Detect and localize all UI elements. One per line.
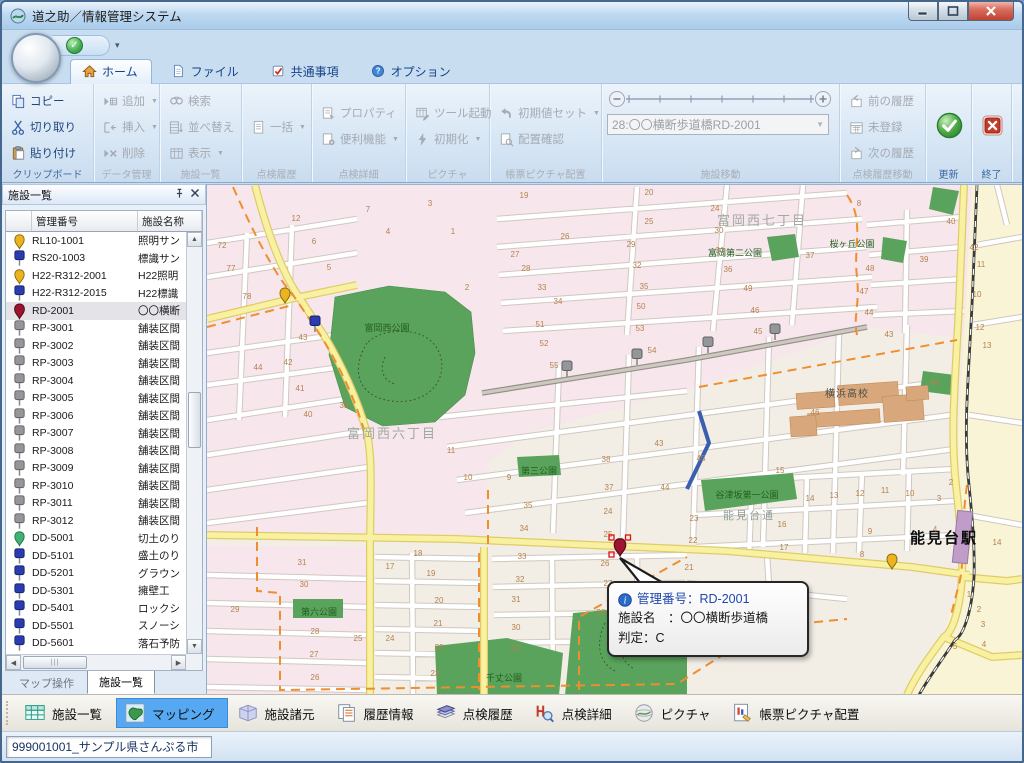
group-label-inspection-history: 点検履歴 [242,166,311,181]
table-row[interactable]: DD-5601落石予防 [6,635,186,653]
toolbar-item-帳票ピクチャ配置[interactable]: 帳票ピクチャ配置 [724,699,871,727]
svg-text:10: 10 [973,290,982,299]
row-name: 落石予防 [138,636,186,651]
table-row[interactable]: RP-3002舗装区間 [6,337,186,355]
paste-button[interactable]: 貼り付け [7,140,89,166]
file-icon [170,63,186,79]
svg-text:2: 2 [977,605,982,614]
table-header: 管理番号 施設名称 [6,211,202,232]
svg-text:16: 16 [778,520,787,529]
row-name: 舗装区間 [138,513,186,528]
ribbon-group-inspection-detail: プロパティ 便利機能▼ 点検詳細 [312,84,406,182]
svg-text:44: 44 [865,308,874,317]
marker-gray-icon [6,407,32,425]
marker-gray-icon [6,354,32,372]
property-button[interactable]: プロパティ [317,100,401,126]
question-icon: ? [370,63,386,79]
svg-text:1: 1 [451,227,456,236]
svg-text:12: 12 [292,214,301,223]
calendar-icon [848,119,864,135]
vertical-scrollbar[interactable]: ▲ ▼ [186,232,202,654]
sort-icon [168,119,184,135]
row-id: RP-3004 [32,375,138,387]
ribbon-group-history-move: 前の履歴 未登録 次の履歴 点検履歴移動 [840,84,926,182]
svg-text:8: 8 [857,199,862,208]
row-name: グラウン [138,566,186,581]
svg-text:3: 3 [981,620,986,629]
svg-text:39: 39 [340,401,349,410]
add-button[interactable]: 追加▼ [99,88,155,114]
row-id: RP-3003 [32,357,138,369]
column-header-icon[interactable] [6,211,32,231]
group-label-facility-move: 施設移動 [602,166,839,181]
table-row[interactable]: DD-5501スノーシ [6,617,186,635]
row-id: RP-3011 [32,497,138,509]
svg-text:33: 33 [518,552,527,561]
panel-title: 施設一覧 [8,187,52,203]
row-id: DD-5601 [32,637,138,649]
tab-common[interactable]: 共通事項 [260,59,352,84]
scroll-down-icon[interactable]: ▼ [187,639,202,654]
btbook-icon [237,702,259,724]
svg-text:能見台通: 能見台通 [723,508,775,522]
svg-text:77: 77 [227,264,236,273]
table-row[interactable]: DD-5001切土のり [6,530,186,548]
svg-text:25: 25 [354,634,363,643]
group-label-facility-list: 施設一覧 [160,166,241,181]
row-id: RP-3006 [32,410,138,422]
table-row[interactable]: DD-5301擁壁工 [6,582,186,600]
svg-text:44: 44 [661,483,670,492]
scroll-left-icon[interactable]: ◀ [6,655,21,670]
marker-blue-icon [6,564,32,582]
sort-button[interactable]: 並べ替え [165,114,237,140]
next-history-button[interactable]: 次の履歴 [845,140,921,166]
toolbar-item-マッピング[interactable]: マッピング [116,698,228,728]
toolbar-item-点検詳細[interactable]: 点検詳細 [527,699,624,727]
update-button[interactable] [935,111,964,145]
svg-text:37: 37 [806,251,815,260]
svg-text:35: 35 [524,501,533,510]
ribbon-tabstrip: ホーム ファイル 共通事項 ? オプション [70,59,464,84]
marker-gray-icon [6,512,32,530]
cut-icon [10,119,26,135]
svg-text:26: 26 [311,673,320,682]
toolbar-grip[interactable] [6,701,11,725]
row-id: DD-5301 [32,585,138,597]
row-name: 舗装区間 [138,478,186,493]
marker-gray-icon [6,477,32,495]
ribbon-group-exit: 終了 [972,84,1012,182]
svg-text:46: 46 [751,306,760,315]
svg-text:桜ヶ丘公園: 桜ヶ丘公園 [829,238,874,249]
view-button[interactable]: 表示▼ [165,140,237,166]
row-id: H22-R312-2015 [32,287,138,299]
svg-text:4: 4 [933,525,938,534]
svg-text:30: 30 [300,580,309,589]
table-row[interactable]: RP-3011舗装区間 [6,495,186,513]
status-bar: 999001001_サンプル県さんぷる市 [2,731,1022,761]
row-name: H22照明 [138,268,186,283]
table-row[interactable]: RD-2001〇〇横断 [6,302,186,320]
svg-text:富岡西七丁目: 富岡西七丁目 [717,213,807,228]
maximize-button[interactable] [938,2,968,21]
tab-file[interactable]: ファイル [160,59,252,84]
svg-text:45: 45 [754,327,763,336]
title-bar: 道之助／情報管理システム [2,2,1022,30]
row-id: RS20-1003 [32,252,138,264]
svg-text:9: 9 [868,527,873,536]
svg-text:43: 43 [299,333,308,342]
svg-text:14: 14 [993,538,1002,547]
lightning-icon [414,131,430,147]
map-area: 富岡西七丁目富岡第二公園桜ヶ丘公園富岡西公園富岡西六丁目横浜高校谷津坂第一公園能… [207,184,1022,694]
svg-text:23: 23 [690,514,699,523]
tab-home[interactable]: ホーム [70,59,152,84]
svg-text:40: 40 [947,217,956,226]
svg-text:7: 7 [366,205,371,214]
row-id: DD-5201 [32,567,138,579]
svg-text:43: 43 [655,439,664,448]
table-row[interactable]: H22-R312-2001H22照明 [6,267,186,285]
tooltip-rating: 判定：C [618,629,797,648]
chevron-down-icon: ▼ [151,98,158,105]
tool-launch-button[interactable]: ツール起動 [411,100,485,126]
row-name: 標識サン [138,251,186,266]
marker-blue-icon [6,249,32,267]
marker-gray-icon [6,442,32,460]
svg-text:10: 10 [906,489,915,498]
svg-text:第六公園: 第六公園 [301,606,337,617]
toolbar-item-施設一覧[interactable]: 施設一覧 [17,699,114,727]
chevron-down-icon: ▼ [151,124,158,131]
row-name: 切土のり [138,531,186,546]
row-id: RP-3007 [32,427,138,439]
svg-text:27: 27 [511,250,520,259]
undo-icon [498,105,514,121]
scrollbar-thumb[interactable]: ||| [23,656,87,669]
window-title: 道之助／情報管理システム [32,6,182,25]
svg-text:3: 3 [428,199,433,208]
group-label-inspection-detail: 点検詳細 [312,166,405,181]
svg-text:49: 49 [744,284,753,293]
row-id: RP-3009 [32,462,138,474]
marker-gray-icon [6,424,32,442]
svg-text:32: 32 [633,261,642,270]
svg-text:48: 48 [931,378,940,387]
svg-text:26: 26 [601,559,610,568]
row-name: 舗装区間 [138,373,186,388]
svg-text:43: 43 [885,330,894,339]
initialize-button[interactable]: 初期化▼ [411,126,485,152]
svg-text:21: 21 [685,563,694,572]
group-label-clipboard: クリップボード [2,166,93,181]
chevron-down-icon: ▼ [299,124,306,131]
svg-text:富岡西公園: 富岡西公園 [364,322,409,333]
svg-text:9: 9 [507,473,512,482]
cut-button[interactable]: 切り取り [7,114,89,140]
row-id: RP-3005 [32,392,138,404]
svg-text:45: 45 [697,454,706,463]
row-name: 〇〇横断 [138,303,186,318]
table-row[interactable]: RP-3001舗装区間 [6,320,186,338]
table-row[interactable]: DD-5201グラウン [6,565,186,583]
insert-icon [102,119,118,135]
layout-check-button[interactable]: 配置確認 [495,126,597,152]
svg-text:22: 22 [689,536,698,545]
paste-icon [10,145,26,161]
table-row[interactable]: RS20-1003標識サン [6,250,186,268]
ribbon-group-picture: ツール起動 初期化▼ ピクチャ [406,84,490,182]
svg-text:34: 34 [520,524,529,533]
row-id: DD-5401 [32,602,138,614]
table-row[interactable]: RP-3010舗装区間 [6,477,186,495]
marker-gray-icon [6,494,32,512]
row-name: 照明サン [138,233,186,248]
batch-button[interactable]: 一括▼ [247,114,307,140]
btreport-icon [731,702,753,724]
svg-text:31: 31 [716,246,725,255]
table-row[interactable]: DD-5401ロックシ [6,600,186,618]
row-id: DD-5001 [32,532,138,544]
scroll-up-icon[interactable]: ▲ [187,232,202,247]
row-name: 舗装区間 [138,408,186,423]
svg-text:横浜高校: 横浜高校 [825,387,869,400]
toolbar-item-履歴情報[interactable]: 履歴情報 [329,699,426,727]
chevron-down-icon: ▼ [475,136,482,143]
svg-text:11: 11 [977,260,986,269]
row-name: 舗装区間 [138,321,186,336]
svg-text:11: 11 [881,486,890,495]
initial-value-set-button[interactable]: 初期値セット▼ [495,100,597,126]
svg-text:51: 51 [536,320,545,329]
row-id: RP-3010 [32,480,138,492]
svg-text:53: 53 [636,324,645,333]
svg-text:78: 78 [243,292,252,301]
quick-confirm-button[interactable]: ✓ [66,37,83,54]
chevron-down-icon: ▼ [392,136,399,143]
tab-facility-list[interactable]: 施設一覧 [87,670,155,694]
panel-tabs: マップ操作 施設一覧 [2,671,206,694]
column-header-id[interactable]: 管理番号 [32,211,138,231]
row-name: 盛土のり [138,548,186,563]
svg-text:8: 8 [860,550,865,559]
toolbar-item-ピクチャ[interactable]: ピクチャ [626,699,723,727]
exit-button[interactable] [982,115,1003,141]
marker-gray-icon [6,319,32,337]
svg-text:2: 2 [949,478,954,487]
row-name: 舗装区間 [138,426,186,441]
btgrid-icon [24,702,46,724]
tool-icon [414,105,430,121]
table-row[interactable]: RP-3012舗装区間 [6,512,186,530]
svg-text:25: 25 [645,217,654,226]
svg-text:10: 10 [464,473,473,482]
svg-text:11: 11 [447,446,456,455]
table-row[interactable]: RP-3006舗装区間 [6,407,186,425]
table-row[interactable]: RL10-1001照明サン [6,232,186,250]
pin-yellow-icon [6,267,32,285]
group-label-update: 更新 [926,166,971,181]
tab-options[interactable]: ? オプション [360,59,464,84]
group-label-history-move: 点検履歴移動 [840,166,925,181]
group-label-picture: ピクチャ [406,166,489,181]
row-id: H22-R312-2001 [32,270,138,282]
search-button[interactable]: 検索 [165,88,237,114]
scrollbar-thumb[interactable] [188,392,201,448]
pin-yellow-icon [6,232,32,250]
svg-text:29: 29 [627,240,636,249]
svg-text:30: 30 [512,623,521,632]
svg-text:19: 19 [520,191,529,200]
svg-text:5: 5 [953,642,958,651]
svg-text:28: 28 [597,608,606,617]
svg-text:33: 33 [538,283,547,292]
chevron-down-icon: ▼ [816,120,824,129]
quick-access-dropdown-icon[interactable]: ▾ [115,40,120,51]
copy-icon [10,93,26,109]
ribbon-group-clipboard: コピー 切り取り 貼り付け クリップボード [2,84,94,182]
svg-text:24: 24 [386,634,395,643]
svg-text:30: 30 [715,226,724,235]
svg-text:36: 36 [724,265,733,274]
btdetail-icon [534,702,556,724]
svg-text:38: 38 [602,455,611,464]
application-orb-button[interactable] [11,33,61,83]
table-row[interactable]: RP-3007舗装区間 [6,425,186,443]
bthistory-icon [336,702,358,724]
toolbar-item-施設諸元[interactable]: 施設諸元 [230,699,327,727]
chevron-down-icon: ▼ [217,150,224,157]
table-row[interactable]: RP-3008舗装区間 [6,442,186,460]
svg-text:40: 40 [304,410,313,419]
svg-text:44: 44 [254,363,263,372]
row-id: RD-2001 [32,305,138,317]
row-id: RP-3008 [32,445,138,457]
marker-blue-icon [6,634,32,652]
svg-text:29: 29 [511,644,520,653]
svg-text:谷津坂第一公園: 谷津坂第一公園 [715,489,778,500]
minimize-button[interactable] [908,2,938,21]
facility-move-slider[interactable] [607,88,835,110]
row-id: RP-3001 [32,322,138,334]
svg-text:35: 35 [640,282,649,291]
document-icon [250,119,266,135]
row-name: スノーシ [138,618,186,633]
horizontal-scrollbar[interactable]: ◀ ||| ▶ [6,654,186,670]
svg-text:19: 19 [427,569,436,578]
tooltip-id: 管理番号：RD-2001 [637,590,750,609]
svg-text:20: 20 [645,188,654,197]
table-row[interactable]: H22-R312-2015H22標識 [6,285,186,303]
add-icon [102,93,118,109]
svg-text:12: 12 [856,489,865,498]
svg-text:2: 2 [465,283,470,292]
group-label-report-picture: 帳票ピクチャ配置 [490,166,601,181]
delete-icon [102,145,118,161]
svg-text:能見台駅: 能見台駅 [910,529,978,547]
column-header-name[interactable]: 施設名称 [138,211,202,231]
svg-text:1: 1 [967,590,972,599]
pin-panel-icon[interactable] [174,188,185,202]
scroll-right-icon[interactable]: ▶ [171,655,186,670]
ribbon-group-data: 追加▼ 挿入▼ 削除 データ管理 [94,84,160,182]
row-name: ロックシ [138,601,186,616]
svg-text:28: 28 [311,627,320,636]
table-row[interactable]: DD-5101盛土のり [6,547,186,565]
svg-text:4: 4 [982,640,987,649]
tooltip-facility-name: 施設名 ：〇〇横断歩道橋 [618,609,797,628]
toolbar-item-点検履歴[interactable]: 点検履歴 [428,699,525,727]
marker-blue-icon [6,599,32,617]
table-row[interactable]: RP-3005舗装区間 [6,390,186,408]
row-name: 舗装区間 [138,461,186,476]
bottom-toolbar: 施設一覧マッピング施設諸元履歴情報点検履歴点検詳細ピクチャ帳票ピクチャ配置 [2,694,1022,731]
close-button[interactable] [968,2,1014,21]
svg-text:22: 22 [435,643,444,652]
delete-button[interactable]: 削除 [99,140,155,166]
svg-text:24: 24 [711,204,720,213]
next-arrow-icon [848,145,864,161]
svg-text:14: 14 [806,494,815,503]
facility-move-combo[interactable]: 28:〇〇横断歩道橋RD-2001 ▼ [607,114,829,135]
utility-icon [320,131,336,147]
info-icon: i [618,593,632,607]
svg-text:千丈公園: 千丈公園 [486,673,522,683]
table-row[interactable]: RP-3004舗装区間 [6,372,186,390]
group-label-data: データ管理 [94,166,159,181]
svg-text:39: 39 [920,255,929,264]
svg-text:50: 50 [637,302,646,311]
row-name: H22標識 [138,286,186,301]
utility-button[interactable]: 便利機能▼ [317,126,401,152]
table-icon [168,145,184,161]
chevron-down-icon: ▼ [593,110,600,117]
magnifier-doc-icon [498,131,514,147]
ribbon-group-update: 更新 [926,84,972,182]
ribbon-group-inspection-history: 一括▼ 点検履歴 [242,84,312,182]
search-icon [168,93,184,109]
marker-blue-icon [6,617,32,635]
svg-text:?: ? [375,67,380,76]
table-row[interactable]: RP-3009舗装区間 [6,460,186,478]
close-panel-icon[interactable] [190,188,200,201]
row-name: 擁壁工 [138,583,186,598]
table-row[interactable]: RP-3003舗装区間 [6,355,186,373]
tab-map-operations[interactable]: マップ操作 [8,672,85,694]
svg-text:12: 12 [976,323,985,332]
svg-text:20: 20 [435,596,444,605]
svg-text:52: 52 [540,339,549,348]
insert-button[interactable]: 挿入▼ [99,114,155,140]
prev-history-button[interactable]: 前の履歴 [845,88,921,114]
unregistered-button[interactable]: 未登録 [845,114,921,140]
facility-panel-header: 施設一覧 [2,184,206,205]
copy-button[interactable]: コピー [7,88,89,114]
svg-text:17: 17 [780,543,789,552]
marker-blue-icon [6,547,32,565]
svg-text:15: 15 [776,466,785,475]
marker-blue-icon [6,582,32,600]
btbooks-icon [435,702,457,724]
svg-text:42: 42 [970,243,979,252]
row-name: 舗装区間 [138,443,186,458]
row-name: 舗装区間 [138,496,186,511]
group-label-exit: 終了 [972,166,1011,181]
row-id: RP-3002 [32,340,138,352]
svg-text:72: 72 [218,241,227,250]
svg-text:34: 34 [554,297,563,306]
